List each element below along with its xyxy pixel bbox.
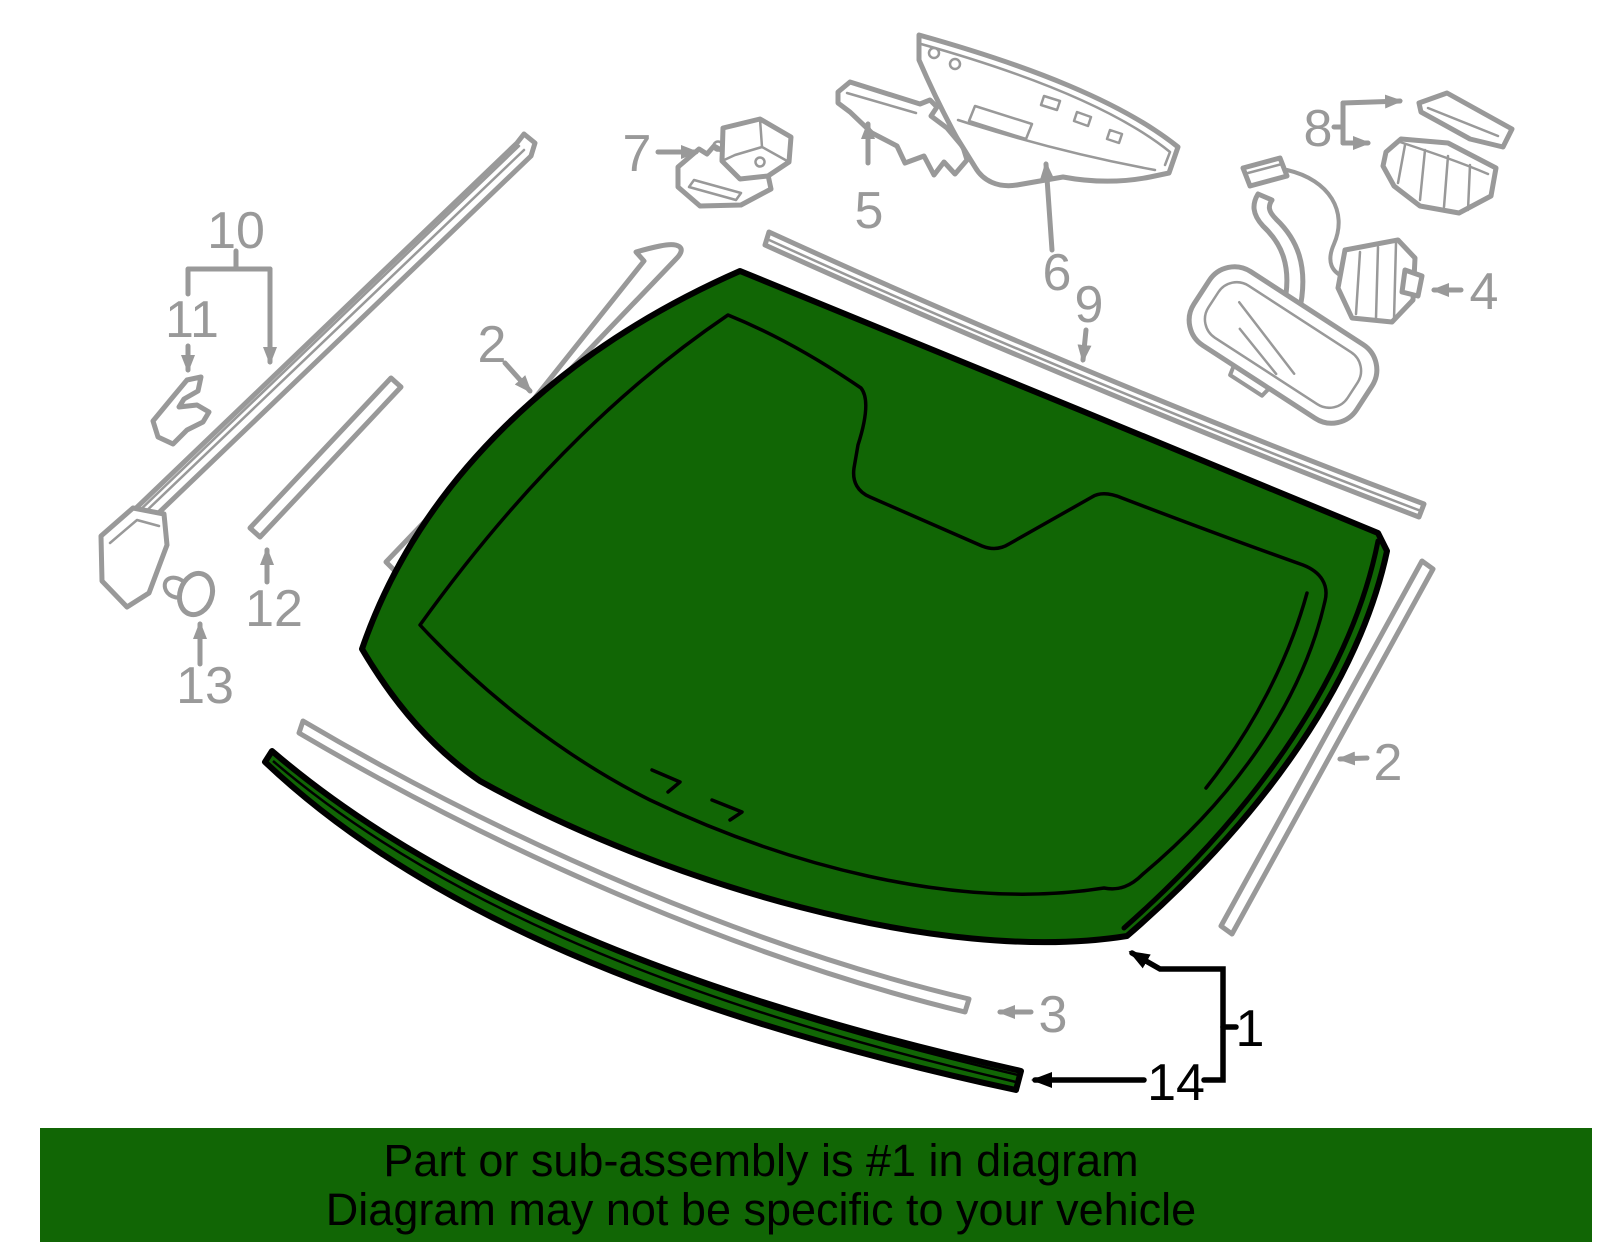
parts-diagram-canvas: 10 11 12 13 2 7 5 6 9 8 4 2 3 1 14 xyxy=(0,0,1600,1249)
callout-label-7[interactable]: 7 xyxy=(623,125,652,183)
highlight-notice-banner: Part or sub-assembly is #1 in diagram Di… xyxy=(40,1128,1592,1242)
molding-clip-11[interactable] xyxy=(153,377,209,444)
callout-label-13[interactable]: 13 xyxy=(176,657,234,715)
grommet-13[interactable] xyxy=(165,569,218,619)
callout-label-1[interactable]: 1 xyxy=(1236,1000,1265,1058)
callout-label-6[interactable]: 6 xyxy=(1043,244,1072,302)
callout-label-2-left[interactable]: 2 xyxy=(478,316,507,374)
callout-label-12[interactable]: 12 xyxy=(245,580,303,638)
callout-label-4[interactable]: 4 xyxy=(1470,263,1499,321)
callout-label-14[interactable]: 14 xyxy=(1147,1054,1205,1112)
roof-molding-end-cap[interactable] xyxy=(101,508,167,607)
callout-label-10[interactable]: 10 xyxy=(207,202,265,260)
rearview-mirror-4[interactable] xyxy=(1172,158,1422,443)
banner-line-2: Diagram may not be specific to your vehi… xyxy=(326,1185,1196,1234)
sensor-bracket-7[interactable] xyxy=(678,119,791,206)
callout-label-3[interactable]: 3 xyxy=(1039,986,1068,1044)
parts-diagram-page: 10 11 12 13 2 7 5 6 9 8 4 2 3 1 14 Part … xyxy=(0,0,1600,1249)
callout-label-2-right[interactable]: 2 xyxy=(1374,734,1403,792)
callout-label-5[interactable]: 5 xyxy=(855,182,884,240)
banner-line-1: Part or sub-assembly is #1 in diagram xyxy=(383,1136,1138,1185)
callout-label-9[interactable]: 9 xyxy=(1075,276,1104,334)
callout-label-11[interactable]: 11 xyxy=(165,291,219,349)
visor-parts-8[interactable] xyxy=(1383,93,1512,213)
callout-label-8[interactable]: 8 xyxy=(1304,100,1333,158)
